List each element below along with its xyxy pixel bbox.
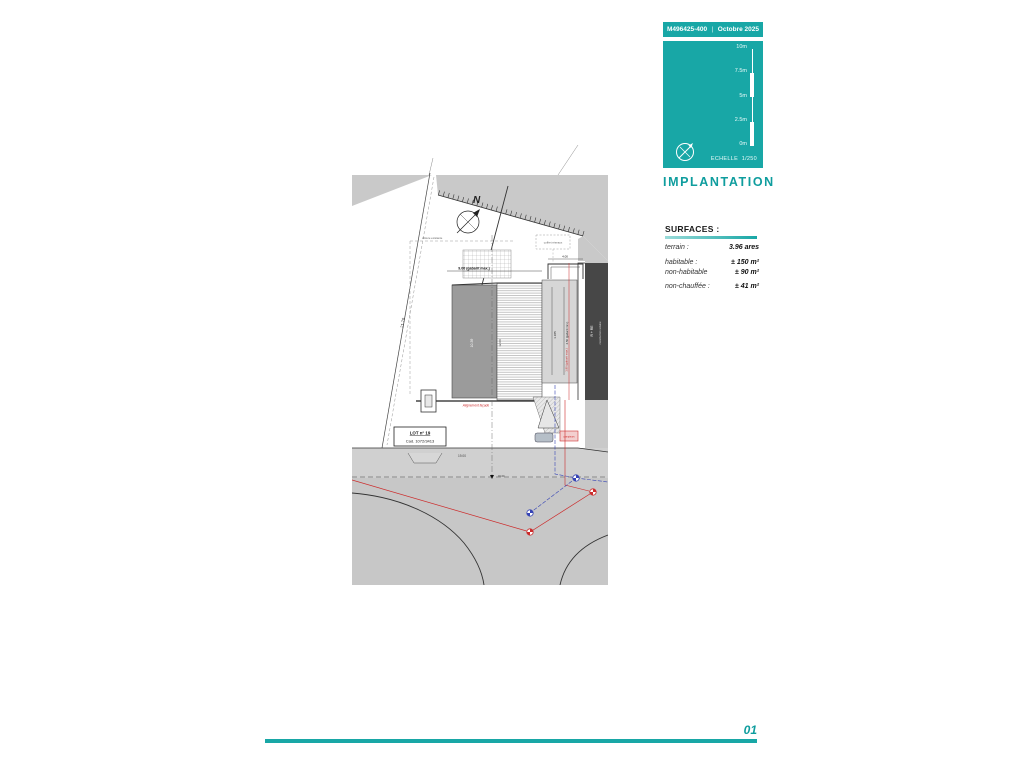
surface-row-non-chauffee: non-chauffée : ± 41 m² xyxy=(665,283,759,290)
surface-row-habitable: habitable : ± 150 m² xyxy=(665,259,759,266)
dim-block-mid-text: 12.00 xyxy=(498,339,502,347)
sidewalk xyxy=(352,448,608,478)
scale-bar-segment xyxy=(750,73,754,97)
scale-tick-10m: 10m xyxy=(717,44,747,50)
building-block-west xyxy=(452,285,497,398)
surfaces-heading: SURFACES : xyxy=(665,224,719,234)
building-block-east xyxy=(542,280,577,383)
surface-label: non-chauffée : xyxy=(665,283,710,290)
scale-tick-2-5m: 2.5m xyxy=(717,117,747,123)
neighbor-label-2: construction voisine xyxy=(598,321,602,344)
driveway-drop-kerb xyxy=(408,453,442,463)
level-label: ±0.00 xyxy=(498,474,505,478)
plan-note-right: coffret réseaux xyxy=(544,241,563,245)
scale-tick-0m: 0m xyxy=(717,141,747,147)
surface-label: habitable : xyxy=(665,259,697,266)
parked-car xyxy=(535,433,553,442)
surface-value: 3.96 ares xyxy=(729,244,759,251)
red-facade-note: Alignement façade xyxy=(462,404,490,408)
echelle-word: ECHELLE xyxy=(711,156,738,162)
compass-icon xyxy=(673,138,699,164)
boundary-extension xyxy=(429,158,433,175)
surface-value: ± 41 m² xyxy=(735,283,759,290)
blue-valve-symbol xyxy=(527,510,533,516)
boundary-extension xyxy=(558,145,578,175)
footer-rule xyxy=(265,739,757,743)
header-separator: | xyxy=(712,26,714,33)
dim-block-r1-text: 1.185 xyxy=(553,331,557,339)
page-title: IMPLANTATION xyxy=(663,175,773,189)
echelle-label: ECHELLE 1/250 xyxy=(711,156,757,162)
dim-block-left-text: 10.39 xyxy=(470,339,474,348)
scale-panel: 10m 7.5m 5m 2.5m 0m ECHELLE 1/250 xyxy=(663,41,763,168)
scale-tick-5m: 5m xyxy=(717,93,747,99)
terrace-grid xyxy=(463,250,511,278)
surface-label: non-habitable xyxy=(665,269,707,276)
scale-tick-7-5m: 7.5m xyxy=(717,68,747,74)
surface-label: terrain : xyxy=(665,244,689,251)
surfaces-underline xyxy=(665,236,757,239)
dim-street-text: 19.00 xyxy=(458,454,466,458)
surface-value: ± 150 m² xyxy=(731,259,759,266)
document-date: Octobre 2025 xyxy=(718,26,759,33)
surface-value: ± 90 m² xyxy=(735,269,759,276)
project-reference: M496425-400 xyxy=(667,26,707,33)
lot-label: LOT n° 19 xyxy=(410,431,431,436)
north-label: N xyxy=(473,195,481,206)
echelle-value: 1/250 xyxy=(742,156,757,162)
plan-note-left: clôture existante xyxy=(422,236,443,240)
boundary-gap xyxy=(578,261,585,448)
dim-step-text: 4.00 xyxy=(562,255,568,259)
surface-row-terrain: terrain : 3.96 ares xyxy=(665,244,759,251)
neighbor-label-1: R + RE xyxy=(590,325,594,337)
scale-bar-segment xyxy=(750,122,754,146)
building-block-center xyxy=(497,283,542,400)
outbuilding-inner xyxy=(425,395,432,407)
site-plan-drawing: 21.70 N clôture existante coffret réseau… xyxy=(352,140,608,585)
blue-valve-symbol xyxy=(573,475,579,481)
cadastre-label: Cad. 1072/3413 xyxy=(406,439,435,444)
title-block-header: M496425-400 | Octobre 2025 xyxy=(663,22,763,37)
dim-top-text: 9.00 (gabarit max.) xyxy=(458,267,490,271)
neighbor-building xyxy=(585,263,608,400)
red-valve-symbol xyxy=(590,489,596,495)
surface-row-non-habitable: non-habitable ± 90 m² xyxy=(665,269,759,276)
document-page: M496425-400 | Octobre 2025 10m 7.5m 5m 2… xyxy=(0,0,1024,768)
dim-block-r2-text: 2.50 (gabarit min.) xyxy=(565,322,569,345)
red-recul-note: 1.80 (gabarit max.) xyxy=(565,348,569,372)
red-valve-symbol xyxy=(527,529,533,535)
page-number: 01 xyxy=(700,723,757,737)
